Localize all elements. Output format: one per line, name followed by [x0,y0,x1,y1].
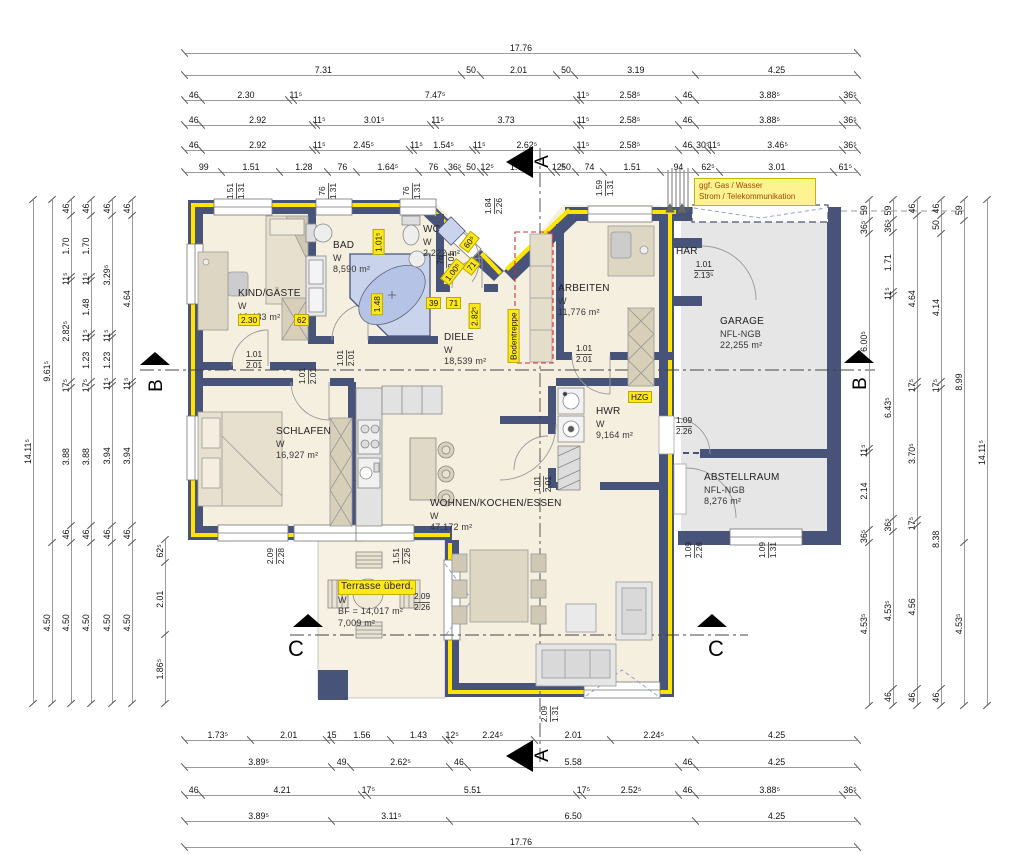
section-letter-b: B [147,379,166,392]
dim-segment: 4.50 [78,543,96,703]
dim-segment: 46 [185,112,202,130]
size-tag-width: 1.09 [757,542,767,558]
yellow-label-0: 2.30 [238,314,260,326]
size-tag-0: 1.012.01 [246,350,262,370]
room-label-har: HAR [676,246,698,259]
size-tag-width: 1.59 [594,180,604,196]
room-label-diele: DIELEW18,539 m² [444,332,486,368]
room-label-line: 16,927 m² [276,450,331,462]
dim-segment: 46 [679,782,696,800]
size-tag-height: 2.26 [676,426,692,437]
dim-segment: 3.01⁵ [317,112,431,130]
dim-value: 1.73⁵ [185,731,251,740]
dim-value: 1.28 [280,163,328,172]
dim-value: 6.50 [450,812,696,821]
utility-note-line1: ggf. Gas / Wasser [699,181,811,192]
yellow-label-10: Bodentreppe [508,309,520,363]
dim-segment: 4.64 [119,216,137,381]
section-letter-a: A [533,749,552,762]
size-tag-height: 1.31 [412,183,423,199]
dim-segment: 4.21 [202,782,361,800]
dim-segment: 61⁵ [834,159,857,177]
dim-value: 4.25 [696,758,857,767]
dim-chain-left-5: 464.6411⁵3.94464.50 [119,200,137,703]
dim-chain-bottom-4: 17.76 [185,834,857,852]
dim-segment: 4.50 [99,543,117,703]
size-tag-5: 1.092.26 [676,416,692,436]
dim-segment: 2.58⁵ [581,137,679,155]
dim-segment: 3.70⁵ [904,388,922,520]
dim-value: 4.53⁵ [955,543,964,705]
dim-segment: 2.92 [202,112,312,130]
room-label-line: W [558,296,610,308]
dim-value: 3.73 [436,116,577,125]
dim-segment: 4.25 [696,727,857,745]
dim-value: 4.50 [43,543,52,703]
dim-segment: 1.28 [280,159,328,177]
dim-chain-top-3: 462.9211⁵3.01⁵11⁵3.7311⁵2.58⁵463.88⁵36⁵ [185,112,857,130]
dim-segment: 3.94 [119,386,137,526]
furniture-dining [452,550,546,624]
dim-value: 14.11⁵ [24,200,33,703]
room-label-line: W [430,511,562,523]
dim-value: 36⁵ [884,519,893,532]
size-tag-height: 2.01 [543,476,554,492]
dim-value: 1.71 [884,233,893,292]
dim-value: 46 [62,526,71,542]
dim-value: 2.01 [156,563,165,636]
dim-value: 59 [955,200,964,221]
dim-value: 3.88 [62,388,71,526]
dim-value: 9.61⁵ [43,200,52,543]
dim-value: 2.58⁵ [581,116,679,125]
dim-value: 4.25 [696,66,857,75]
dim-value: 3.94 [123,386,132,526]
room-label-line: NFL-NGB [720,329,764,341]
dim-segment: 4.25 [696,754,857,772]
dim-segment: 2.01 [251,727,327,745]
room-label-line: W [333,253,370,265]
dim-segment: 1.23 [78,338,96,382]
dim-segment: 4.14 [928,234,946,382]
dim-value: 2.58⁵ [581,141,679,150]
room-label-line: SCHLAFEN [276,426,331,439]
dim-value: 46 [884,689,893,705]
room-label-line: 18,539 m² [444,356,486,368]
dim-value: 3.88⁵ [696,116,843,125]
dim-segment: 1.70 [78,216,96,277]
section-arrow-b [140,352,170,365]
size-tag-width: 1.09 [683,542,693,558]
yellow-label-5: 71 [446,297,461,309]
dim-value: 2.30 [202,91,289,100]
size-tag-height: 1.31 [236,183,247,199]
dim-segment: 5.51 [368,782,576,800]
dim-value: 5.58 [468,758,679,767]
size-tag-3: 1.012.01 [533,476,553,492]
dim-segment: 4.53⁵ [880,532,898,689]
size-tag-height: 2.26 [402,548,413,564]
size-tag-18: 761.31 [402,183,422,199]
dim-value: 4.50 [123,543,132,703]
size-tag-width: 1.51 [225,183,235,199]
dim-value: 1.51 [222,163,279,172]
dim-segment: 3.46⁵ [712,137,843,155]
room-label-line: 22,255 m² [720,340,764,352]
dim-value: 4.50 [103,543,112,703]
dim-segment: 3.73 [436,112,577,130]
room-label-line: KIND/GÄSTE [238,288,301,301]
room-label-line: DIELE [444,332,474,345]
size-tag-width: 76 [317,186,327,195]
size-tag-width: 1.01 [335,350,345,366]
size-tag-height: 1.31 [550,706,561,722]
dim-segment: 4.25 [696,808,857,826]
dim-segment: 3.29⁵ [99,216,117,333]
room-label-line: W [423,237,460,249]
size-tag-2: 1.012.01 [298,368,318,384]
dim-value: 8.99 [955,221,964,543]
dim-value: 1.23 [103,338,112,382]
dim-value: 2.45⁵ [317,141,410,150]
room-label-wohnen: WOHNEN/KOCHEN/ESSENW47,172 m² [430,498,562,534]
room-label-line: 11,776 m² [558,307,610,319]
dim-value: 2.24⁵ [450,731,535,740]
dim-chain-top-2: 462.3011⁵7.47⁵11⁵2.58⁵463.88⁵36⁵ [185,87,857,105]
size-tag-16: 1.511.31 [226,183,246,199]
dim-value: 46 [932,689,941,705]
dim-value: 61⁵ [834,163,857,172]
dim-segment: 3.88⁵ [696,87,843,105]
dim-segment: 36⁵ [843,137,857,155]
dim-segment: 2.45⁵ [317,137,410,155]
dim-value: 3.88⁵ [696,786,843,795]
dim-value: 36⁵ [843,141,857,150]
dim-value: 4.64 [123,216,132,381]
dim-segment: 46 [185,137,202,155]
dim-value: 7.31 [185,66,462,75]
dim-segment: 4.50 [39,543,57,703]
room-label-line: W [238,301,301,313]
dim-chain-top-1: 7.31502.01503.194.25 [185,62,857,80]
dim-chain-right-3: 46504.1417⁵8.3846 [928,200,946,705]
yellow-label-11: HZG [628,391,652,403]
dim-value: 1.56 [332,731,391,740]
dim-segment: 1.71 [880,233,898,292]
dim-segment: 46 [185,782,202,800]
dim-value: 2.24⁵ [611,731,696,740]
dim-segment: 2.14 [856,453,874,530]
dim-chain-left-1: 9.61⁵4.50 [39,200,57,703]
room-label-line: Terrasse überd. [338,580,416,595]
size-tag-12: 2.091.31 [540,706,560,722]
dim-value: 3.46⁵ [712,141,843,150]
dim-chain-left-0: 14.11⁵ [20,200,38,703]
dim-segment: 4.53⁵ [951,543,969,705]
dim-segment: 3.88 [58,388,76,526]
dim-value: 3.01 [720,163,834,172]
section-arrow-c [697,614,727,627]
dim-segment: 2.30 [202,87,289,105]
dim-value: 2.01 [251,731,327,740]
dim-value: 46 [103,200,112,216]
room-label-line: BAD [333,240,354,253]
size-tag-height: 1.31 [768,542,779,558]
dim-value: 36⁵ [843,91,857,100]
size-tag-11: 1.512.26 [392,548,412,564]
dim-value: 36⁵ [860,530,869,543]
dim-segment: 1.86⁵ [152,635,170,703]
dim-segment: 2.52⁵ [583,782,679,800]
dim-segment: 46 [679,112,696,130]
dim-segment: 3.01 [720,159,834,177]
dim-segment: 6.43⁵ [880,296,898,519]
dim-segment: 4.64 [904,216,922,381]
size-tag-width: 1.01 [532,476,542,492]
dim-chain-left-3: 461.7011⁵1.4811⁵1.2317⁵3.88464.50 [78,200,96,703]
dim-value: 2.01 [535,731,611,740]
dim-value: 3.19 [575,66,696,75]
size-tag-width: 1.01 [297,368,307,384]
dim-segment: 36⁵ [856,221,874,234]
dim-value: 46 [123,200,132,216]
yellow-label-1: 62 [294,314,309,326]
dim-segment: 3.94 [99,386,117,526]
size-tag-height: 2.26 [414,602,430,613]
dim-segment: 30⁵ [696,137,708,155]
dim-value: 46 [82,200,91,216]
dim-value: 4.56 [908,526,917,688]
dim-chain-bottom-2: 464.2117⁵5.5117⁵2.52⁵463.88⁵36⁵ [185,782,857,800]
room-label-schlafen: SCHLAFENW16,927 m² [276,426,331,462]
size-tag-width: 1.09 [676,415,692,425]
dim-value: 3.29⁵ [103,216,112,333]
dim-segment: 46 [679,87,696,105]
yellow-label-3: 1.48 [371,293,383,315]
room-label-line: HAR [676,246,698,259]
dim-value: 3.89⁵ [185,812,332,821]
dim-segment: 5.58 [468,754,679,772]
dim-value: 1.70 [82,216,91,277]
dim-chain-right-1: 5936⁵1.7111⁵6.43⁵36⁵4.53⁵46 [880,200,898,705]
room-label-line: BF = 14,017 m² [338,606,416,618]
dim-segment: 46 [880,689,898,705]
room-label-line: WOHNEN/KOCHEN/ESSEN [430,498,562,511]
dim-segment: 46 [904,689,922,705]
dim-segment: 50 [557,62,576,80]
dim-segment: 46 [679,137,696,155]
dim-value: 46 [62,200,71,216]
dim-value: 4.21 [202,786,361,795]
dim-segment: 8.99 [951,221,969,543]
room-label-line: 8,590 m² [333,264,370,276]
dim-value: 8.38 [932,389,941,689]
dim-segment: 4.50 [58,543,76,703]
dim-segment: 1.51 [604,159,661,177]
dim-value: 14.11⁵ [978,200,987,705]
section-arrow-a [506,740,533,772]
dim-value: 2.92 [202,141,312,150]
dim-segment: 3.88⁵ [696,112,843,130]
dim-value: 1.64⁵ [357,163,419,172]
dim-segment: 36⁵ [880,220,898,233]
dim-value: 2.01 [481,66,557,75]
yellow-label-4: 39 [426,297,441,309]
dim-segment: 17.76 [185,40,857,58]
dim-value: 3.94 [103,386,112,526]
dim-segment: 46 [679,754,696,772]
dim-chain-left-4: 463.29⁵11⁵1.2311⁵3.94464.50 [99,200,117,703]
size-tag-9: 2.092.26 [414,592,430,612]
size-tag-14: 1.591.31 [595,180,615,196]
dim-segment: 1.23 [99,338,117,382]
dim-segment: 36⁵ [843,782,857,800]
dim-value: 4.64 [908,216,917,381]
size-tag-height: 2.26 [694,542,705,558]
size-tag-8: 1.091.31 [758,542,778,558]
dim-value: 17.76 [185,44,857,53]
dim-segment: 1.56 [332,727,391,745]
section-letter-c: C [288,638,304,660]
section-letter-a: A [533,155,552,168]
dim-value: 4.53⁵ [884,532,893,689]
dim-value: 1.86⁵ [156,635,165,703]
room-label-abstell: ABSTELLRAUMNFL-NGB8,276 m² [704,472,780,508]
dim-value: 3.70⁵ [908,388,917,520]
dim-segment: 36⁵ [843,87,857,105]
size-tag-width: 2.09 [265,548,275,564]
size-tag-width: 1.01 [246,349,262,359]
dim-value: 2.92 [202,116,312,125]
dim-value: 46 [123,526,132,542]
dim-segment: 36⁵ [843,112,857,130]
room-label-garage: GARAGENFL-NGB22,255 m² [720,316,764,352]
size-tag-height: 2.01 [308,368,319,384]
dim-segment: 14.11⁵ [974,200,992,705]
utility-note-line2: Strom / Telekommunikation [699,192,811,203]
dim-segment: 14.11⁵ [20,200,38,703]
dim-value: 1.51 [604,163,661,172]
floorplan-canvas: 17.767.31502.01503.194.25462.3011⁵7.47⁵1… [0,0,1033,855]
size-tag-width: 1.84 [483,198,493,214]
dim-value: 4.50 [82,543,91,703]
dim-segment: 3.11⁵ [332,808,450,826]
dim-segment: 36⁵ [448,159,462,177]
size-tag-height: 2.28 [276,548,287,564]
room-label-arbeiten: ARBEITENW11,776 m² [558,283,610,319]
room-label-line: W [444,345,486,357]
room-label-line: NFL-NGB [704,485,780,497]
dim-segment: 2.01 [481,62,557,80]
room-label-line: 7,009 m² [338,618,416,630]
size-tag-width: 1.01 [576,343,592,353]
dim-value: 1.54⁵ [414,141,472,150]
room-label-line: GARAGE [720,316,764,329]
dim-value: 1.23 [82,338,91,382]
dim-value: 4.53⁵ [860,543,869,705]
dim-value: 7.47⁵ [294,91,577,100]
room-label-terrasse: Terrasse überd.WBF = 14,017 m²7,009 m² [338,580,416,629]
dim-value: 4.50 [62,543,71,703]
dim-chain-left-6: 62⁵2.011.86⁵ [152,540,170,703]
size-tag-height: 2.01 [346,350,357,366]
dim-segment: 4.53⁵ [856,543,874,705]
dim-segment: 3.89⁵ [185,808,332,826]
size-tag-width: 1.01 [696,259,712,269]
dim-segment: 4.25 [696,62,857,80]
size-tag-height: 2.01 [246,360,262,371]
dim-segment: 1.54⁵ [414,137,472,155]
room-label-line: W [276,439,331,451]
dim-segment: 8.38 [928,389,946,689]
dim-segment: 4.50 [119,543,137,703]
size-tag-4: 1.012.01 [576,344,592,364]
dim-segment: 6.50 [450,808,696,826]
room-label-line: W [338,595,416,607]
dim-segment: 1.70 [58,216,76,277]
furniture-hwr [558,388,584,490]
dim-segment: 2.92 [202,137,312,155]
dim-segment: 4.56 [904,526,922,688]
dim-value: 1.70 [62,216,71,277]
dim-segment: 2.62⁵ [351,754,450,772]
section-arrow-c [293,614,323,627]
size-tag-13: 1.842.26 [484,198,504,214]
dim-segment: 1.51 [222,159,279,177]
size-tag-height: 2.13⁵ [694,270,714,281]
dim-chain-right-0: 5936⁵6.00⁵11⁵2.1436⁵4.53⁵ [856,200,874,705]
dim-chain-top-0: 17.76 [185,40,857,58]
section-arrow-a [506,146,533,178]
size-tag-17: 761.31 [318,183,338,199]
dim-segment: 9.61⁵ [39,200,57,543]
dim-segment: 1.43 [391,727,445,745]
dim-segment: 46 [185,87,202,105]
dim-segment: 1.73⁵ [185,727,251,745]
dim-value: 1.43 [391,731,445,740]
dim-segment: 7.31 [185,62,462,80]
size-tag-1: 1.012.01 [336,350,356,366]
dim-value: 59 [884,200,893,220]
dim-value: 36⁵ [843,116,857,125]
dim-value: 4.25 [696,812,857,821]
dim-segment: 3.89⁵ [185,754,332,772]
dim-value: 3.88 [82,388,91,526]
dim-value: 46 [82,526,91,542]
room-label-hwr: HWRW9,164 m² [596,406,633,442]
size-tag-width: 76 [435,255,445,264]
dim-segment: 46 [928,689,946,705]
dim-segment: 1.48 [78,281,96,334]
dim-value: 59 [860,200,869,221]
size-tag-6: 1.012.13⁵ [694,260,714,280]
size-tag-10: 2.092.28 [266,548,286,564]
dim-segment: 7.47⁵ [294,87,577,105]
dim-segment: 17.76 [185,834,857,852]
dim-segment: 2.01 [152,563,170,636]
dim-value: 3.11⁵ [332,812,450,821]
size-tag-7: 1.092.26 [684,542,704,558]
dim-value: 5.51 [368,786,576,795]
yellow-label-9: 2.82⁵ [469,303,481,329]
room-label-line: HWR [596,406,620,419]
section-letter-b: B [851,377,870,390]
room-label-line: 8,276 m² [704,496,780,508]
dim-value: 3.88⁵ [696,91,843,100]
dim-value: 2.14 [860,453,869,530]
dim-segment: 2.82⁵ [58,281,76,382]
dim-segment: 3.88 [78,388,96,526]
